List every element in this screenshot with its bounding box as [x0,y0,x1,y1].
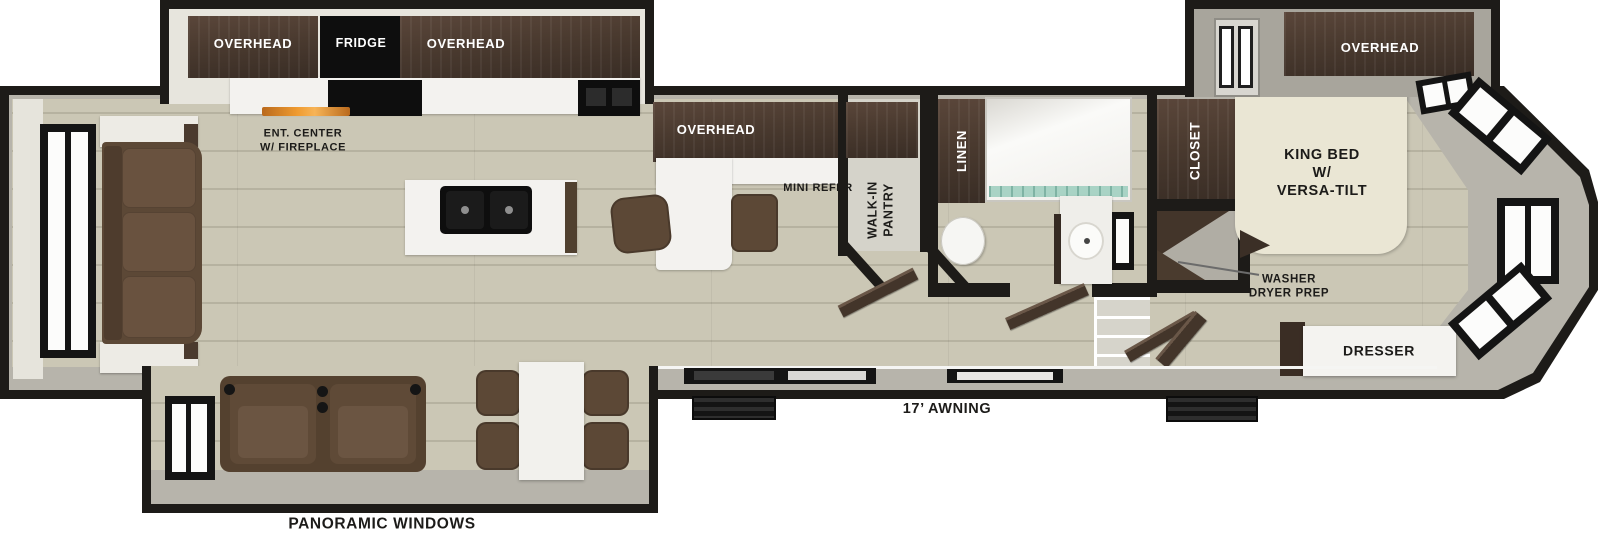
toilet [941,217,985,265]
dinette-chair [582,370,629,416]
label-washer-line2: DRYER PREP [1249,287,1329,301]
bath-window [1112,212,1134,270]
nose-window-pane [1458,301,1507,349]
entry-door-main [684,368,876,384]
label-linen: LINEN [954,130,970,172]
entry-steps-second [1166,396,1258,422]
floorplan-canvas: OVERHEAD FRIDGE OVERHEAD ENT. CENTER W/ … [0,0,1600,538]
entry-door-glass [694,371,774,380]
sofa-backrest [104,146,122,340]
label-panoramic-windows: PANORAMIC WINDOWS [288,514,475,533]
fireplace-glow [262,107,350,116]
label-walk-in-pantry: WALK-IN PANTRY [865,181,896,239]
cupholder [317,386,328,397]
label-overhead-kitchen-left: OVERHEAD [214,36,292,52]
sink-drain [505,206,513,214]
theater-seating [220,376,426,472]
bar-chair-left [609,193,673,255]
dinette-chair [582,422,629,470]
cupholder [317,402,328,413]
label-overhead-kitchen-right: OVERHEAD [427,36,505,52]
nose-window-pane [1459,87,1508,135]
theater-seat-cushion [338,406,408,458]
label-dresser: DRESSER [1343,342,1415,360]
label-king-bed: KING BED W/ VERSA-TILT [1277,146,1367,200]
washer-closet-wall-bottom [1147,280,1250,293]
dinette-chair [476,370,521,416]
label-king-bed-line1: KING BED [1277,146,1367,164]
label-awning: 17’ AWNING [903,400,991,418]
island-wood-edge [565,182,577,253]
label-ent-center: ENT. CENTER W/ FIREPLACE [260,127,346,155]
sofa-slide-window [165,396,215,480]
cooktop-stove [578,80,640,116]
bedroom-slide-window-pane [1219,26,1234,88]
label-overhead-bedroom: OVERHEAD [1341,40,1419,56]
label-closet: CLOSET [1188,122,1205,180]
rear-window [40,124,96,358]
nose-window-pane [1531,206,1551,276]
sink-drain [461,206,469,214]
nose-window-pane [1492,272,1541,320]
entry-door-glass [957,372,1053,380]
entry-steps-main [692,396,776,420]
bedroom-slide-window-pane [1422,83,1446,108]
sofa-cushion [122,148,196,208]
label-fridge: FRIDGE [336,36,387,52]
cupholder [410,384,421,395]
double-sink [440,186,532,234]
sofa-cushion [122,276,196,338]
dinette-table [519,362,584,480]
label-overhead-peninsula: OVERHEAD [677,122,755,138]
sofa-cushion [122,212,196,272]
stove-grate [612,88,632,106]
vanity-wood-edge [1054,214,1061,284]
theater-seat [330,384,416,464]
theater-seat-cushion [238,406,308,458]
bath-wall-right [1147,94,1157,297]
sofa [102,142,202,344]
label-walk-in-pantry-line1: WALK-IN [865,181,881,239]
rear-window-pane [48,132,65,350]
label-ent-center-line2: W/ FIREPLACE [260,141,346,155]
stove-grate [586,88,606,106]
bar-chair-right [731,194,778,252]
label-walk-in-pantry-line2: PANTRY [881,181,897,239]
entry-door-glass [788,371,866,380]
nose-window-pane [1493,116,1542,164]
label-washer-line1: WASHER [1249,273,1329,287]
label-king-bed-line3: VERSA-TILT [1277,182,1367,200]
bedroom-slide-window-left [1214,18,1260,97]
rear-window-pane [71,132,88,350]
entry-door-second [947,369,1063,383]
label-ent-center-line1: ENT. CENTER [260,127,346,141]
theater-seat [230,384,316,464]
rear-wall-trim [13,99,43,379]
label-king-bed-line2: W/ [1277,164,1367,182]
bedroom-slide-window-pane [1238,26,1253,88]
vanity-faucet [1084,238,1090,244]
sofa-slide-window-pane [191,404,207,472]
sofa-slide-window-pane [172,404,186,472]
end-table-bottom-wood [184,342,198,359]
cupholder [224,384,235,395]
bath-window-pane [1116,219,1129,263]
label-washer-dryer-prep: WASHER DRYER PREP [1249,273,1329,302]
pantry-cabinet [846,102,918,158]
bath-wall-bottom-left [928,283,1010,297]
bath-wall-left [928,94,938,297]
dinette-chair [476,422,521,470]
bedroom-steps [1094,297,1150,368]
